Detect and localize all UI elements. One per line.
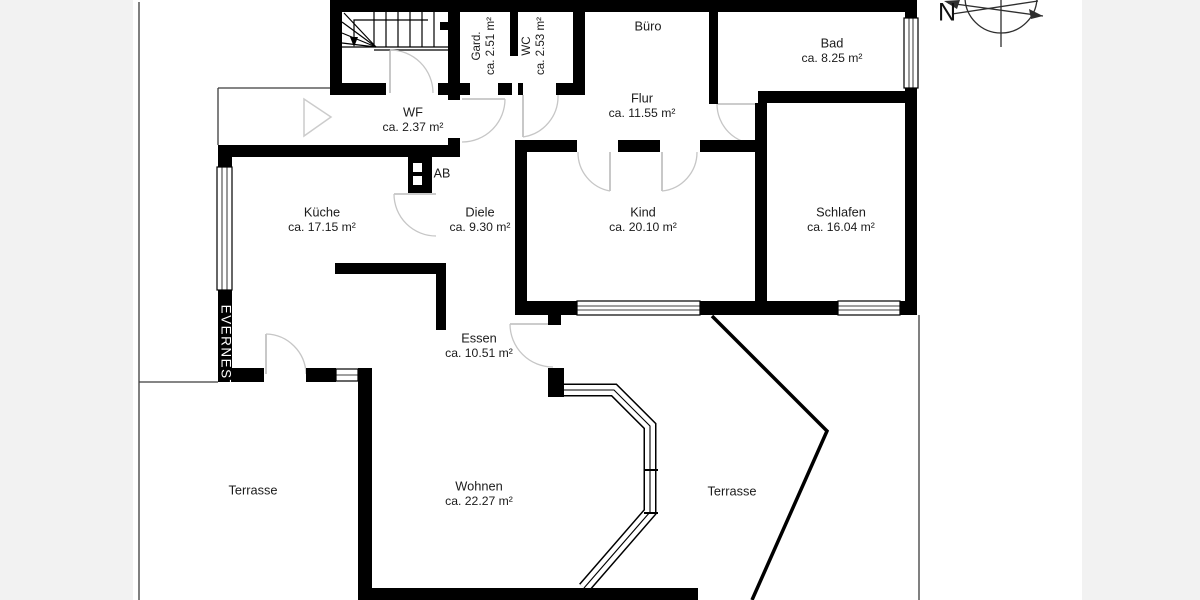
room-label-diele: ca. 9.30 m²: [450, 220, 511, 234]
room-label-bad: Bad: [821, 35, 844, 50]
window-kind-south: [577, 301, 700, 315]
right-margin-band: [1082, 0, 1200, 600]
room-label-wf: WF: [403, 104, 423, 119]
window-bad-east: [904, 18, 918, 88]
window-schlafen-south: [838, 301, 900, 315]
room-label-flur: ca. 11.55 m²: [609, 106, 676, 120]
room-label-schlafen: Schlafen: [816, 204, 866, 219]
shaft-label: AB: [434, 166, 451, 180]
north-label: N: [938, 0, 956, 27]
window-kueche-west: [217, 167, 232, 290]
room-label-diele: Diele: [465, 204, 494, 219]
room-label-wohnen: ca. 22.27 m²: [445, 494, 513, 508]
room-label-essen: ca. 10.51 m²: [445, 346, 513, 360]
room-label-wc: WC: [520, 36, 533, 55]
window-kueche-south: [336, 369, 358, 381]
room-label-schlafen: ca. 16.04 m²: [807, 220, 875, 234]
room-label-buero: Büro: [634, 18, 661, 33]
room-label-kind: Kind: [630, 204, 656, 219]
watermark-text: EVERNEST: [218, 305, 233, 390]
room-label-flur: Flur: [631, 90, 654, 105]
room-label-kueche: ca. 17.15 m²: [288, 220, 356, 234]
room-label-bad: ca. 8.25 m²: [802, 51, 863, 65]
room-label-terrasse-west: Terrasse: [228, 482, 277, 497]
room-label-kind: ca. 20.10 m²: [609, 220, 677, 234]
room-label-kueche: Küche: [304, 204, 340, 219]
room-label-wohnen: Wohnen: [455, 478, 502, 493]
plan-background: [0, 0, 1200, 600]
room-label-gard: Gard.: [470, 32, 483, 61]
room-label-wc: ca. 2.53 m²: [534, 17, 547, 75]
room-label-gard: ca. 2.51 m²: [484, 17, 497, 75]
room-label-wf: ca. 2.37 m²: [383, 120, 444, 134]
floor-plan: Gard.ca. 2.51 m²WCca. 2.53 m²BüroBadca. …: [0, 0, 1200, 600]
left-margin-band: [0, 0, 133, 600]
room-label-essen: Essen: [461, 330, 497, 345]
room-label-terrasse-east: Terrasse: [707, 483, 756, 498]
